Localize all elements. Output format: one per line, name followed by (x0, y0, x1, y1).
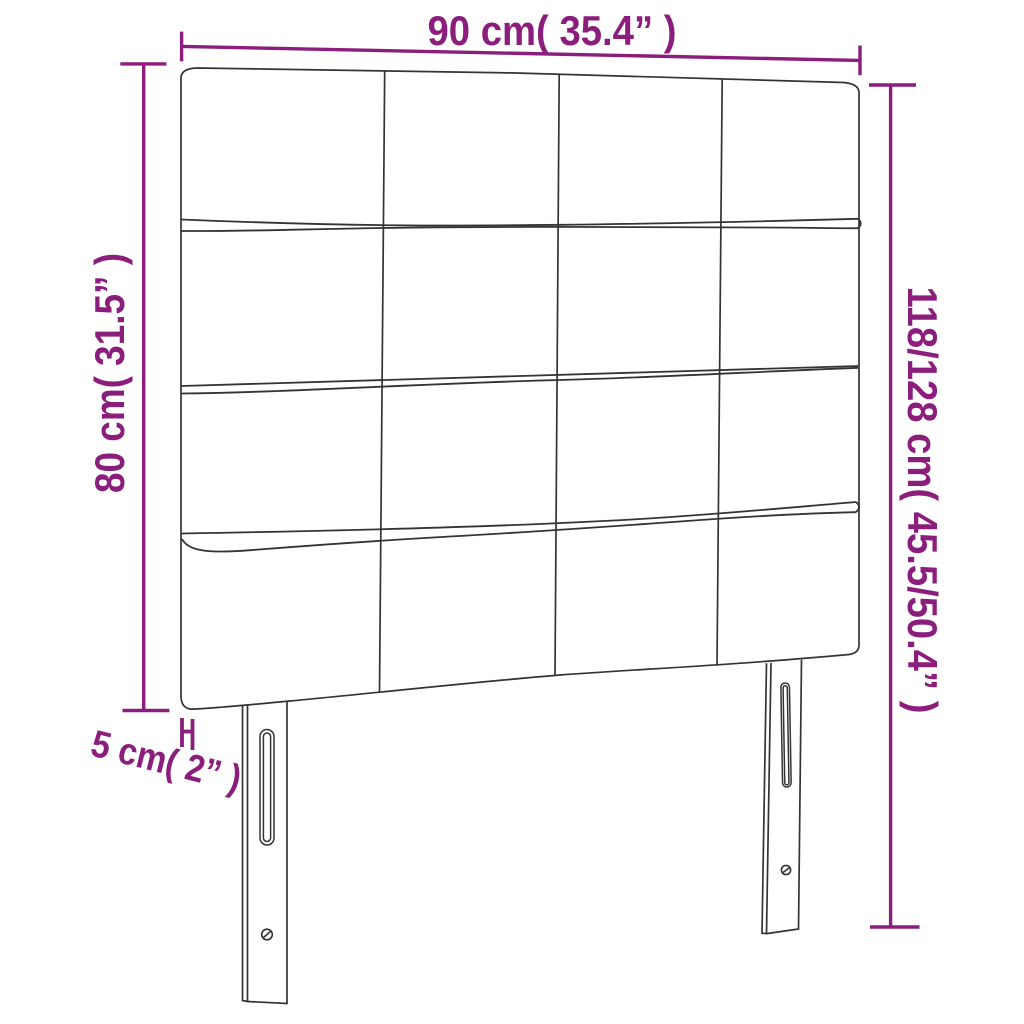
svg-text:90 cm( 35.4” ): 90 cm( 35.4” ) (428, 7, 677, 54)
svg-text:80 cm( 31.5” ): 80 cm( 31.5” ) (86, 253, 133, 493)
svg-text:118/128 cm( 45.5/50.4” ): 118/128 cm( 45.5/50.4” ) (899, 287, 946, 714)
